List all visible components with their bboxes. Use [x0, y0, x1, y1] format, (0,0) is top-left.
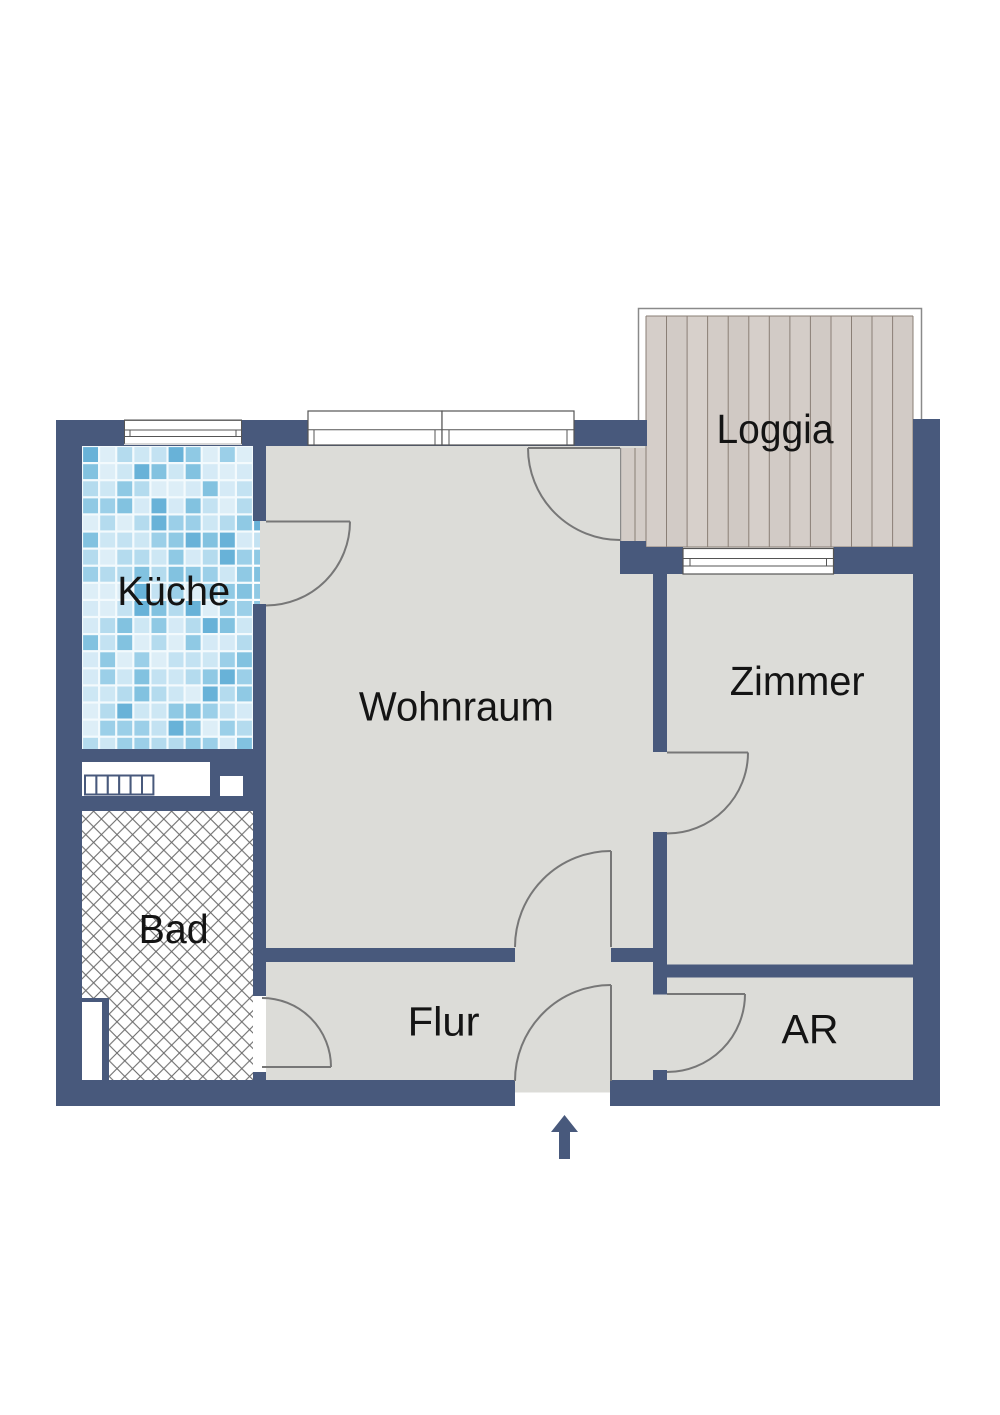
svg-text:AR: AR	[782, 1006, 839, 1052]
svg-text:Wohnraum: Wohnraum	[359, 684, 554, 730]
svg-text:Bad: Bad	[139, 906, 209, 952]
svg-text:Zimmer: Zimmer	[730, 658, 865, 704]
svg-text:Loggia: Loggia	[717, 406, 834, 452]
svg-text:Küche: Küche	[117, 568, 230, 614]
svg-text:Flur: Flur	[408, 998, 480, 1044]
